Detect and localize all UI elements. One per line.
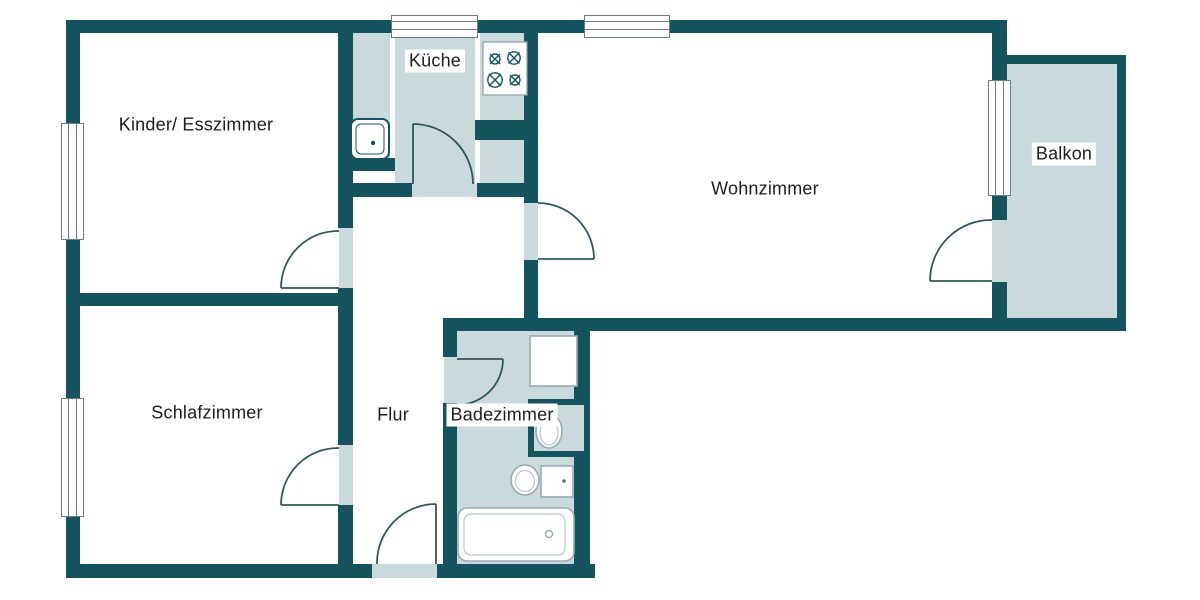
door-swing-badezimmer xyxy=(457,359,503,405)
room-label-balkon: Balkon xyxy=(1032,143,1096,166)
door-swing-schlafzimmer xyxy=(281,448,339,505)
room-label-wohnzimmer: Wohnzimmer xyxy=(711,179,819,200)
washing-machine xyxy=(530,336,577,386)
door-swing-balkon xyxy=(930,220,992,281)
room-label-kueche: Küche xyxy=(405,50,465,73)
door-swing-kinder xyxy=(281,231,339,288)
bathtub xyxy=(458,508,574,561)
floor-plan: Kinder/ Esszimmer Küche Wohnzimmer Balko… xyxy=(0,0,1200,600)
toilet xyxy=(511,465,573,497)
door-swing-wohnzimmer xyxy=(538,203,594,259)
room-label-badezimmer: Badezimmer xyxy=(446,404,557,427)
room-label-schlafzimmer: Schlafzimmer xyxy=(151,403,262,424)
stove xyxy=(483,42,527,95)
kitchen-sink xyxy=(351,119,389,159)
door-swing-kueche xyxy=(413,124,473,184)
door-swing-entrance xyxy=(377,504,436,564)
doors-and-fixtures-layer xyxy=(0,0,1200,600)
room-label-flur: Flur xyxy=(377,405,409,426)
room-label-kinder-esszimmer: Kinder/ Esszimmer xyxy=(119,115,273,136)
